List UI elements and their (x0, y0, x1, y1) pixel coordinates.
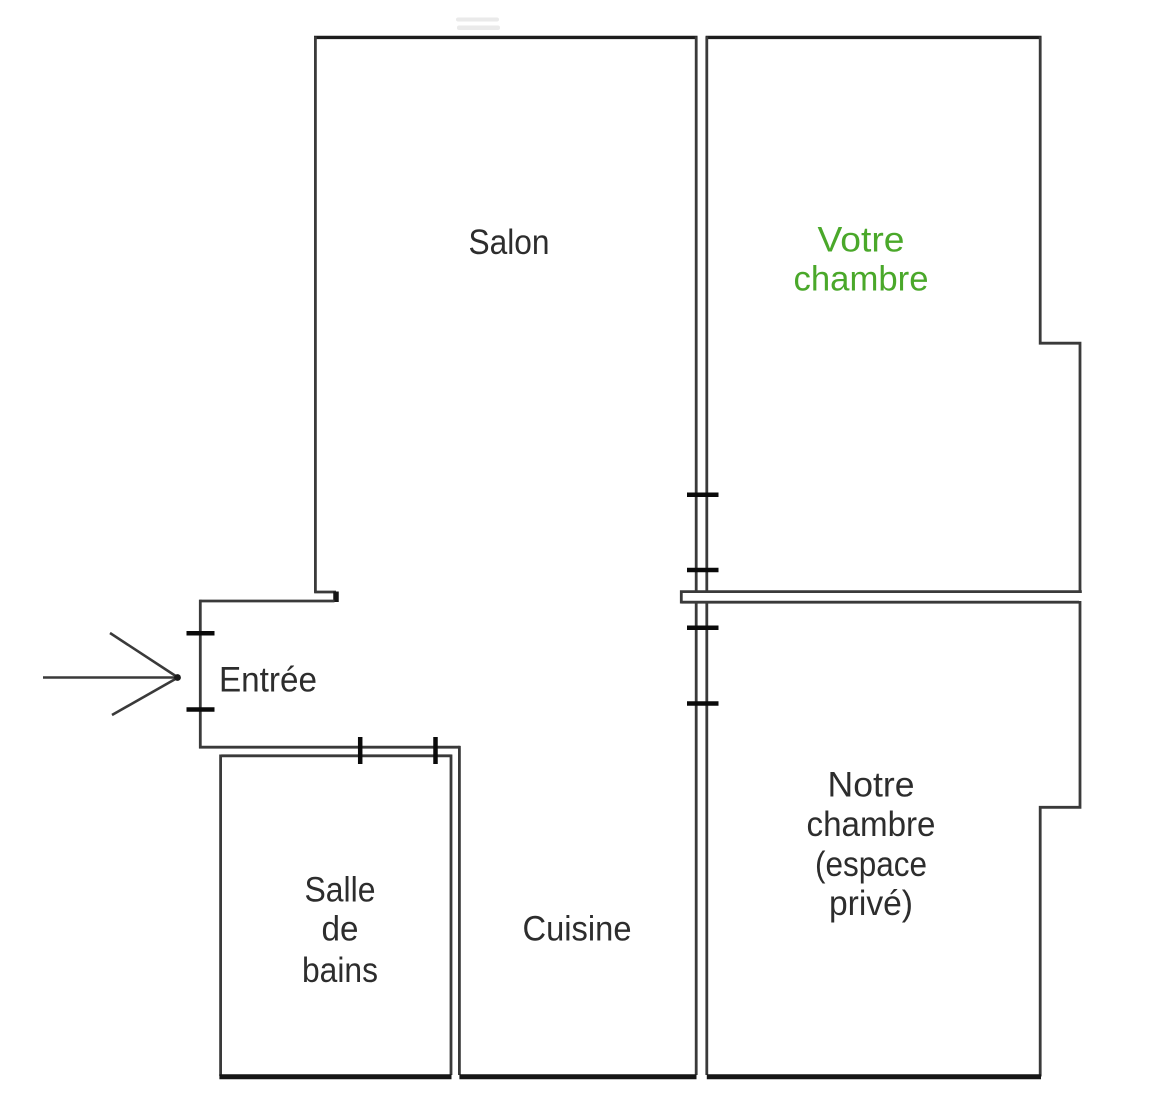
svg-text:de: de (322, 910, 359, 949)
svg-text:chambre: chambre (794, 259, 929, 298)
svg-text:Salon: Salon (469, 223, 550, 262)
svg-text:(espace: (espace (815, 845, 927, 884)
svg-text:chambre: chambre (807, 805, 936, 844)
svg-text:Salle: Salle (305, 871, 376, 910)
svg-text:Notre: Notre (828, 766, 915, 805)
svg-text:bains: bains (302, 951, 378, 990)
svg-text:Votre: Votre (818, 220, 905, 259)
svg-text:Cuisine: Cuisine (523, 910, 632, 949)
svg-text:Entrée: Entrée (219, 661, 317, 700)
svg-text:privé): privé) (829, 884, 913, 923)
